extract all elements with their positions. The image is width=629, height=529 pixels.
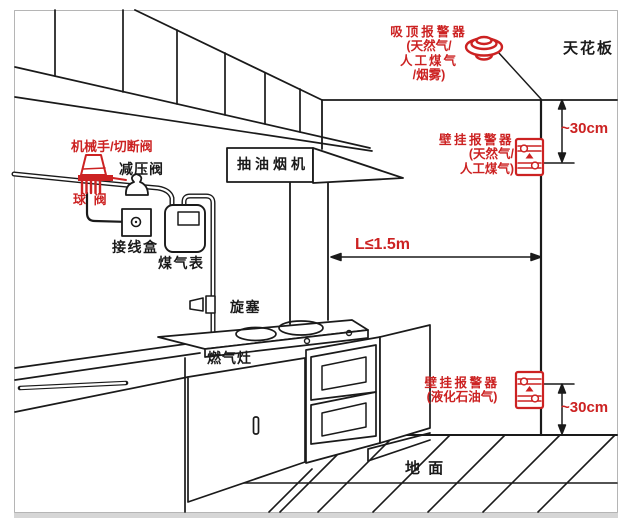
wall-alarm-upper-label: 壁挂报警器 (天然气/ 人工煤气)	[428, 133, 514, 176]
junction-box-label: 接线盒	[112, 239, 159, 255]
reducing-valve-label: 减压阀	[119, 161, 164, 177]
plug-valve-label: 旋塞	[230, 299, 261, 315]
kitchen-gas-alarm-installation-diagram: 吸顶报警器 (天然气/ 人工煤气 /烟雾) 天花板 ~30cm 壁挂报警器 (天…	[0, 0, 629, 529]
ceiling-label: 天花板	[563, 40, 614, 57]
ceiling-alarm-label: 吸顶报警器 (天然气/ 人工煤气 /烟雾)	[381, 25, 477, 83]
gas-stove-label: 燃气灶	[207, 350, 252, 366]
ball-valve-label: 球 阀	[73, 193, 109, 208]
junction-box-icon	[122, 209, 151, 236]
wall-alarm-upper-icon	[516, 139, 543, 175]
mechanical-valve-label: 机械手/切断阀	[71, 140, 153, 155]
wall-alarm-lower-icon	[516, 372, 543, 408]
dim-top-label: ~30cm	[561, 120, 608, 137]
gas-meter-icon	[165, 205, 205, 252]
distance-dimension-label: L≤1.5m	[355, 236, 410, 254]
gas-meter-label: 煤气表	[158, 255, 205, 271]
range-hood-label: 抽油烟机	[237, 156, 309, 172]
dim-bottom-label: ~30cm	[561, 399, 608, 416]
diagram-canvas	[0, 0, 629, 529]
ground-label: 地 面	[405, 460, 445, 477]
wall-alarm-lower-label: 壁挂报警器 (液化石油气)	[418, 376, 506, 405]
